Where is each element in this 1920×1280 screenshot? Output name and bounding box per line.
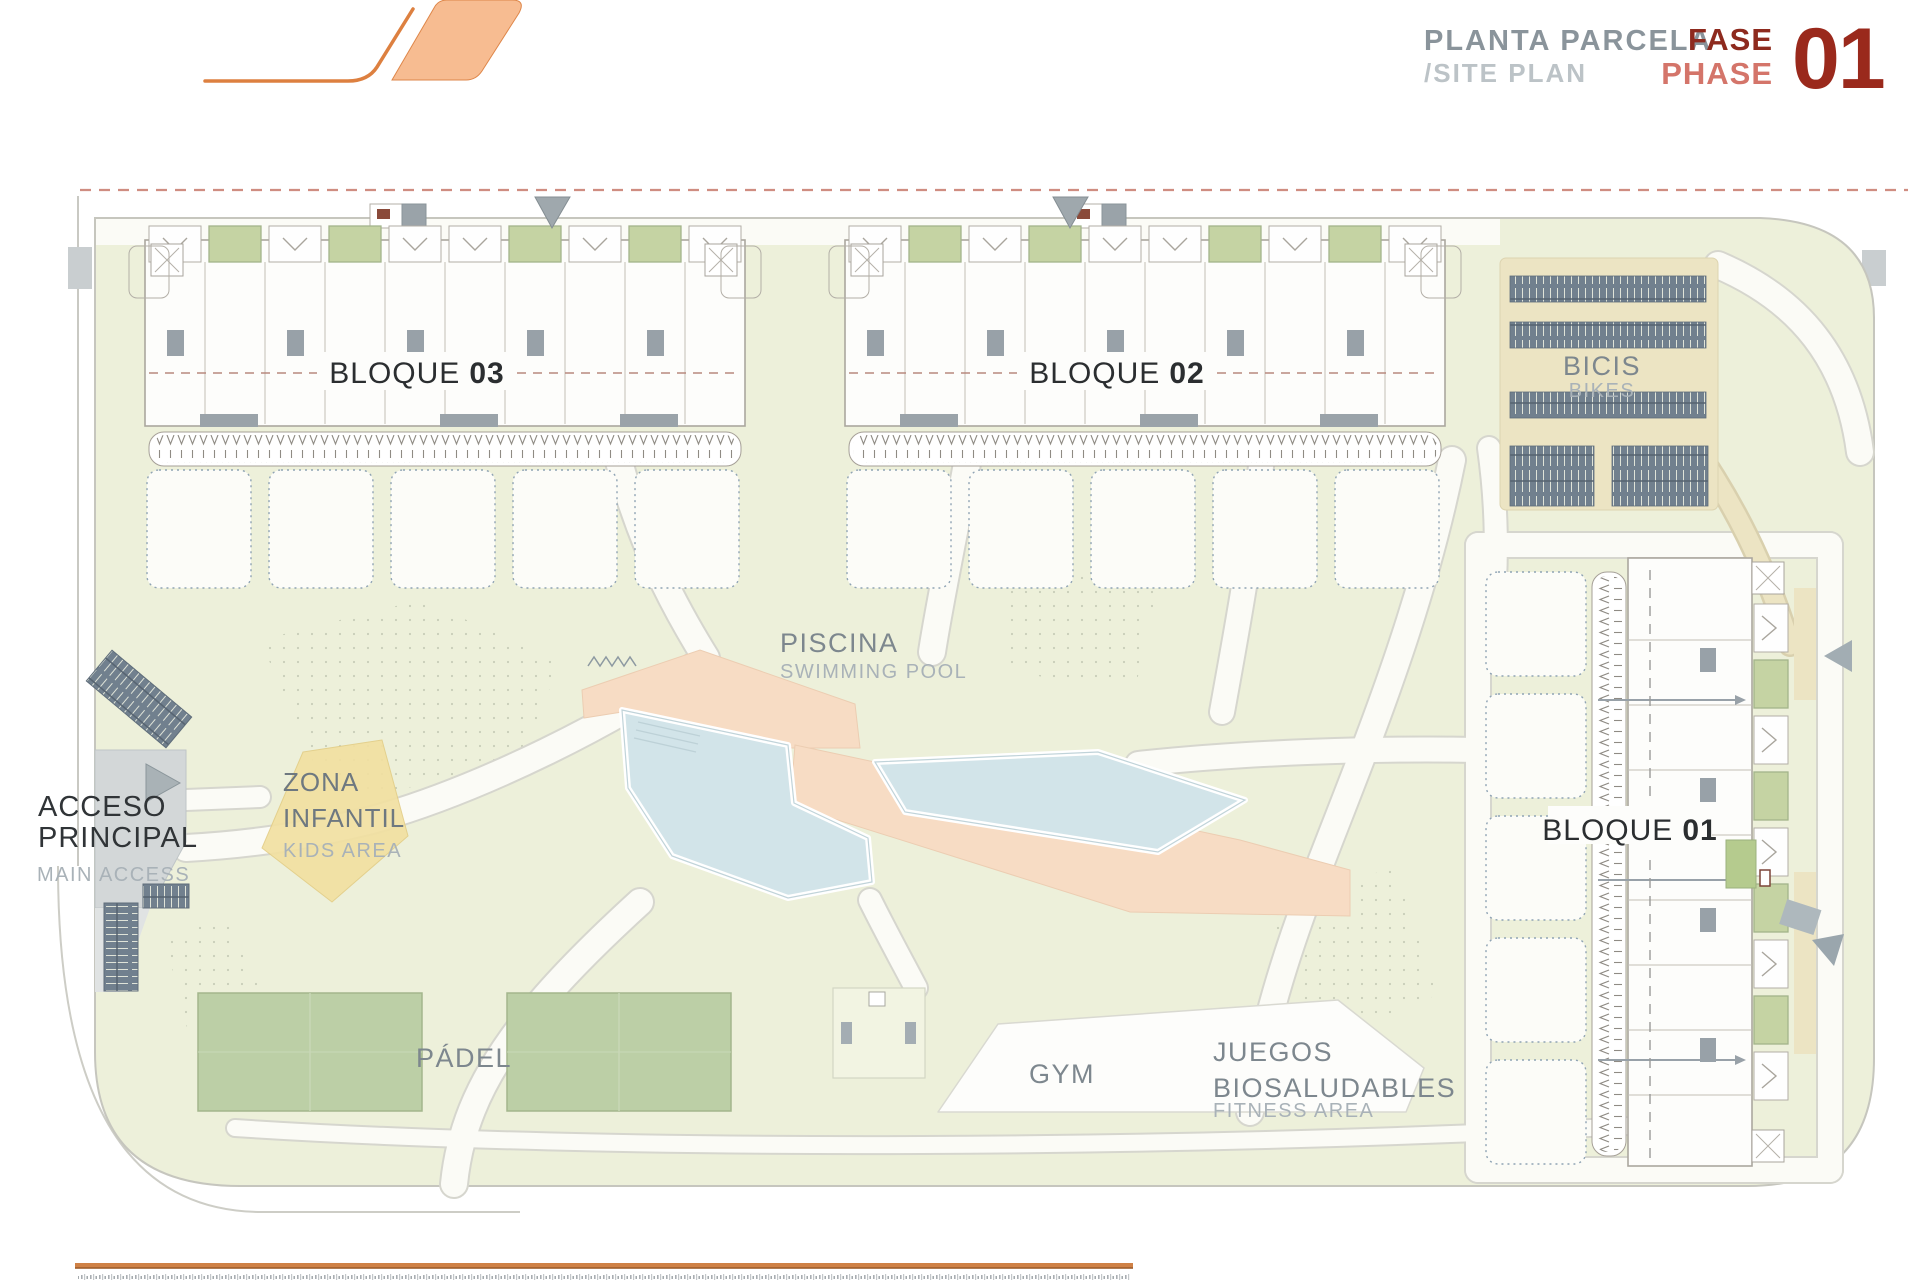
page-title: PLANTA PARCELA [1424, 25, 1712, 57]
fitness-label-line1: JUEGOS [1213, 1037, 1333, 1067]
bloque-01-building [1486, 558, 1816, 1166]
site-plan-page: BLOQUE03 BLOQUE02 BLOQUE01 BICIS BIKES P… [0, 0, 1920, 1280]
access-label-line2: PRINCIPAL [38, 822, 198, 854]
bloque-02-building [829, 204, 1461, 588]
phase-label: PHASE [1661, 56, 1773, 91]
bloque-03-label: BLOQUE03 [329, 357, 504, 390]
brand-logo [205, 0, 521, 81]
kids-label-line1: ZONA [283, 767, 359, 797]
pool-label: PISCINA [780, 628, 899, 658]
bloque-03-building [129, 204, 761, 588]
header: PLANTA PARCELA /SITE PLAN FASE PHASE 01 [205, 0, 1884, 107]
bike-rack-south [104, 903, 138, 991]
bikes-sublabel: BIKES [1569, 380, 1635, 402]
pool-sublabel: SWIMMING POOL [780, 661, 967, 683]
fitness-label-line2: BIOSALUDABLES [1213, 1073, 1456, 1103]
fase-label: FASE [1688, 22, 1773, 57]
footer-rule [75, 1263, 1133, 1280]
bloque-02-label: BLOQUE02 [1029, 357, 1204, 390]
fitness-sublabel: FITNESS AREA [1213, 1100, 1374, 1122]
access-label-line1: ACCESO [38, 791, 166, 823]
kids-sublabel: KIDS AREA [283, 840, 402, 862]
site-plan-canvas: BLOQUE03 BLOQUE02 BLOQUE01 BICIS BIKES P… [0, 0, 1920, 1280]
kids-label-line2: INFANTIL [283, 803, 405, 833]
access-sublabel: MAIN ACCESS [37, 864, 190, 886]
phase-number: 01 [1792, 11, 1884, 107]
bike-rack-small [143, 884, 189, 908]
bikes-label: BICIS [1563, 351, 1641, 381]
fine-print-strip [78, 1274, 1130, 1280]
fitness-plaza [833, 988, 925, 1078]
gym-label: GYM [1029, 1059, 1095, 1089]
page-subtitle: /SITE PLAN [1424, 58, 1587, 88]
bloque-01-label: BLOQUE01 [1542, 814, 1717, 847]
padel-label: PÁDEL [416, 1043, 512, 1073]
